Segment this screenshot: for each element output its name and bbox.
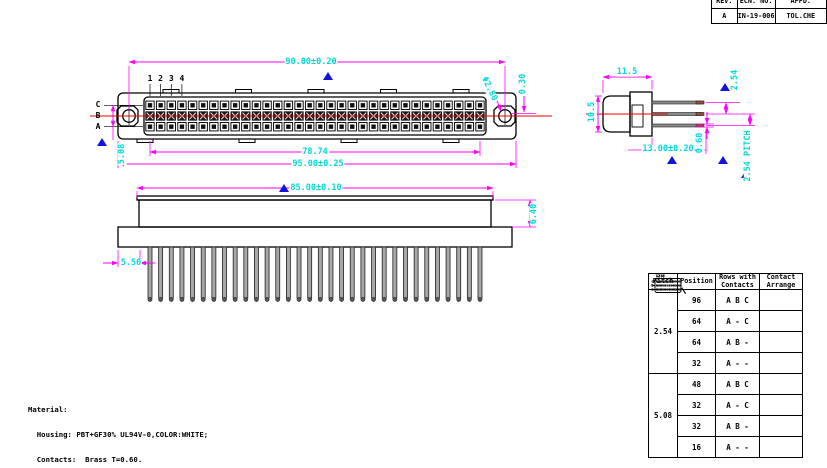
position-cell: 32 bbox=[678, 416, 716, 437]
position-cell: 32 bbox=[678, 395, 716, 416]
dim-hole-span-label: 90.00±0.20 bbox=[284, 58, 337, 67]
dim-pin-length-label: 13.00±0.20 bbox=[641, 145, 694, 154]
rev-value: A bbox=[712, 9, 738, 24]
pin-number-2: 2 bbox=[158, 75, 163, 83]
rev-header: REV. bbox=[712, 0, 738, 9]
dim-edge-offset-label: 0.30 bbox=[519, 73, 528, 95]
pitch-cell: 5.08 bbox=[649, 374, 678, 458]
contact-arrange-diagram: 1234cba bbox=[649, 274, 689, 295]
contact-arrange-cell: 1234cba bbox=[760, 416, 803, 437]
rows-with-contacts-cell: A - C bbox=[716, 311, 760, 332]
rows-with-contacts-cell: A B - bbox=[716, 332, 760, 353]
position-cell: 16 bbox=[678, 437, 716, 458]
contact-arrange-cell: 1234cba bbox=[760, 395, 803, 416]
contact-arrange-cell: 1234cba bbox=[760, 437, 803, 458]
pin-number-4: 4 bbox=[179, 75, 184, 83]
pin-number-3: 3 bbox=[169, 75, 174, 83]
dim-pin-thickness-label: 0.60 bbox=[696, 132, 705, 154]
centerlines bbox=[90, 114, 668, 116]
position-cell: 32 bbox=[678, 353, 716, 374]
datum-triangles bbox=[97, 72, 751, 192]
contact-arrange-cell: 1234cba bbox=[760, 353, 803, 374]
appd-header: APPD. bbox=[775, 0, 826, 9]
ecn-header: ECN. NO. bbox=[737, 0, 775, 9]
contact-arrange-cell: 1234cba bbox=[760, 290, 803, 311]
revision-header-row: REV. ECN. NO. APPD. bbox=[712, 0, 827, 9]
dim-row-pitch-label: 2.54 PITCH bbox=[744, 129, 753, 182]
rows-with-contacts-cell: A B C bbox=[716, 290, 760, 311]
row-label-a: A bbox=[96, 123, 101, 131]
row-label-c: C bbox=[96, 101, 101, 109]
svg-text:a: a bbox=[651, 287, 653, 291]
position-cell: 48 bbox=[678, 374, 716, 395]
position-cell: 64 bbox=[678, 332, 716, 353]
dim-side-height-label: 10.5 bbox=[588, 101, 597, 123]
dim-contact-span-label: 78.74 bbox=[301, 148, 329, 157]
spec-row: 5.0848A B C1234cba bbox=[649, 374, 803, 395]
rows-with-contacts-cell: A - C bbox=[716, 395, 760, 416]
dim-row-span-label: 5.08 bbox=[118, 143, 127, 165]
pin-number-1: 1 bbox=[148, 75, 153, 83]
rows-with-contacts-header: Rows with Contacts bbox=[716, 274, 760, 290]
pin-row bbox=[148, 247, 482, 302]
appd-value: TOL.CHE bbox=[775, 9, 826, 24]
dim-body-width-label: 85.00±0.10 bbox=[289, 184, 342, 193]
rows-with-contacts-cell: A B C bbox=[716, 374, 760, 395]
spec-table: Pitch Position Rows with Contacts Contac… bbox=[648, 273, 803, 458]
row-label-b: B bbox=[96, 112, 101, 120]
revision-row: A IN-19-006 TOL.CHE bbox=[712, 9, 827, 24]
position-cell: 64 bbox=[678, 311, 716, 332]
note-line: Contacts: Brass T=0.60. bbox=[28, 456, 239, 464]
note-line: Material: bbox=[28, 406, 239, 414]
pitch-cell: 2.54 bbox=[649, 290, 678, 374]
ecn-value: IN-19-006 bbox=[737, 9, 775, 24]
revision-table: REV. ECN. NO. APPD. A IN-19-006 TOL.CHE bbox=[711, 0, 827, 24]
rows-with-contacts-cell: A B - bbox=[716, 416, 760, 437]
note-line: Housing: PBT+GF30% UL94V-0,COLOR:WHITE; bbox=[28, 431, 239, 439]
dim-side-width-label: 11.5 bbox=[616, 68, 638, 77]
rows-with-contacts-cell: A - - bbox=[716, 437, 760, 458]
dim-flange-offset-label: 5.50 bbox=[120, 259, 142, 268]
contact-arrange-cell: 1234cba bbox=[760, 332, 803, 353]
bottom-view bbox=[118, 196, 512, 247]
dim-body-height-label: 6.40 bbox=[530, 203, 539, 225]
contact-arrange-header: Contact Arrange bbox=[760, 274, 803, 290]
dim-pin-pitch-label: 2.54 bbox=[731, 69, 740, 91]
drawing-sheet: 90.00±0.20 5.08 78.74 95.00±0.25 Φ2.80 0… bbox=[0, 0, 827, 468]
contact-arrange-cell: 1234cba bbox=[760, 311, 803, 332]
rows-with-contacts-cell: A - - bbox=[716, 353, 760, 374]
contact-arrange-cell: 1234cba bbox=[760, 374, 803, 395]
dim-overall-width-label: 95.00±0.25 bbox=[291, 160, 344, 169]
notes-block: Material: Housing: PBT+GF30% UL94V-0,COL… bbox=[28, 389, 239, 468]
